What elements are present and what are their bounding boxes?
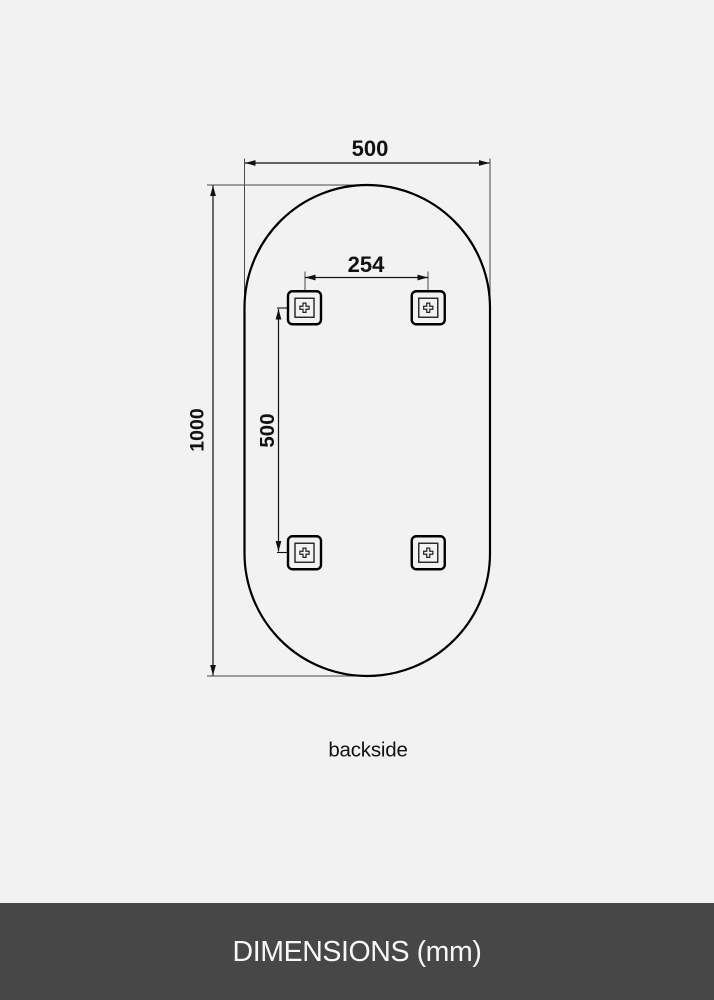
svg-text:1000: 1000	[187, 408, 209, 452]
svg-text:500: 500	[352, 136, 389, 161]
svg-text:DIMENSIONS (mm): DIMENSIONS (mm)	[233, 936, 482, 968]
svg-text:backside: backside	[328, 739, 407, 762]
svg-text:254: 254	[348, 252, 385, 277]
svg-text:500: 500	[256, 413, 279, 447]
